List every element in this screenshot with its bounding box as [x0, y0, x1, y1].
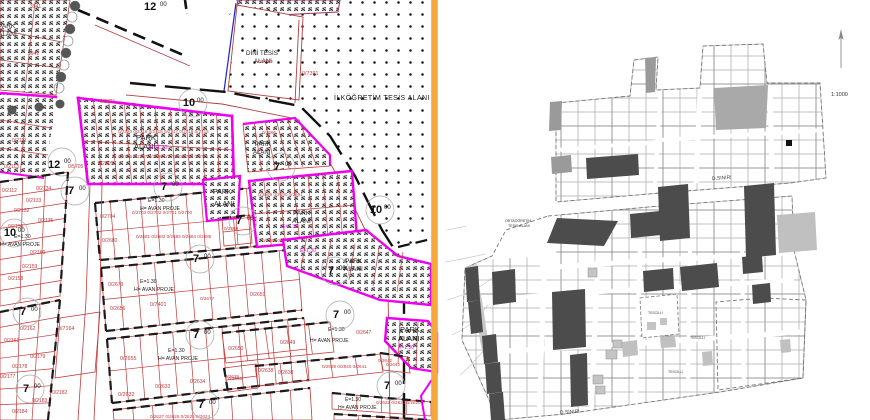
svg-text:00: 00	[34, 384, 41, 390]
svg-text:0/5705: 0/5705	[68, 164, 84, 170]
svg-text:0/2721: 0/2721	[100, 99, 116, 105]
svg-text:0/2159: 0/2159	[22, 264, 38, 270]
svg-text:0/2182: 0/2182	[52, 390, 68, 396]
svg-text:00: 00	[172, 182, 179, 188]
svg-text:7: 7	[384, 380, 390, 392]
svg-text:1:1000: 1:1000	[831, 92, 848, 98]
svg-text:10: 10	[4, 227, 16, 239]
svg-text:İLKÖĞRETİM TESİS ALANI: İLKÖĞRETİM TESİS ALANI	[334, 93, 430, 102]
svg-text:ALANI: ALANI	[0, 31, 17, 38]
svg-text:7: 7	[236, 215, 242, 227]
svg-text:3941: 3941	[30, 4, 41, 10]
svg-text:H= AVAN PROJE: H= AVAN PROJE	[338, 405, 377, 411]
svg-text:7: 7	[20, 306, 26, 318]
svg-text:E=1.30: E=1.30	[148, 198, 165, 204]
svg-text:TESCİLLİ: TESCİLLİ	[668, 369, 683, 374]
svg-text:0/2655: 0/2655	[120, 356, 137, 362]
svg-text:E=1.30: E=1.30	[300, 248, 316, 254]
svg-text:0/2638: 0/2638	[278, 370, 294, 376]
svg-text:0/2679: 0/2679	[108, 282, 124, 288]
svg-text:E=1.30: E=1.30	[398, 345, 414, 351]
svg-text:0/2634: 0/2634	[190, 379, 206, 385]
svg-text:0/2647: 0/2647	[356, 330, 372, 336]
svg-text:H= AVAN PROJE: H= AVAN PROJE	[310, 338, 349, 344]
svg-text:00: 00	[247, 216, 254, 222]
svg-text:PARK: PARK	[213, 189, 232, 196]
svg-text:ORTAÖĞRETİM: ORTAÖĞRETİM	[505, 218, 531, 223]
svg-text:DİNİ TESİS: DİNİ TESİS	[246, 50, 278, 57]
svg-text:00: 00	[31, 307, 38, 313]
svg-text:PARK: PARK	[345, 258, 363, 265]
svg-text:PARK: PARK	[293, 210, 311, 217]
svg-text:0/2639 0/2640 0/2641: 0/2639 0/2640 0/2641	[322, 364, 367, 369]
svg-text:10: 10	[183, 97, 195, 109]
svg-text:00: 00	[285, 162, 292, 168]
svg-text:TESCİLLİ: TESCİLLİ	[690, 335, 705, 340]
svg-text:7: 7	[68, 185, 74, 197]
svg-text:0/2720 0/2719 0/2718 0/2717 0/: 0/2720 0/2719 0/2718 0/2717 0/2716 0/271…	[118, 129, 209, 134]
svg-text:0/2689 0/2690 0/2691: 0/2689 0/2690 0/2691	[258, 192, 303, 197]
svg-text:0/2632: 0/2632	[118, 392, 135, 398]
svg-text:H= AVAN PROJE: H= AVAN PROJE	[158, 356, 199, 362]
svg-text:12: 12	[144, 1, 156, 13]
svg-text:7: 7	[333, 309, 339, 321]
svg-text:0/2706 0/2707 0/2708 0/2709 0/: 0/2706 0/2707 0/2708 0/2709 0/2710 0/271…	[118, 154, 209, 159]
svg-text:0/2177: 0/2177	[0, 374, 16, 380]
svg-text:00: 00	[339, 266, 346, 272]
svg-text:PARK: PARK	[400, 325, 420, 334]
svg-text:00: 00	[197, 98, 204, 104]
svg-text:7: 7	[193, 329, 199, 341]
svg-text:0/2178: 0/2178	[12, 364, 28, 370]
svg-text:0/2134: 0/2134	[36, 186, 52, 192]
svg-text:0/2162: 0/2162	[20, 326, 36, 332]
svg-text:E=1.30: E=1.30	[140, 279, 157, 285]
svg-text:0/2705: 0/2705	[98, 161, 114, 167]
svg-text:0/7164: 0/7164	[58, 326, 75, 332]
svg-text:0/2659: 0/2659	[250, 292, 266, 298]
svg-text:0/7391: 0/7391	[302, 71, 319, 77]
svg-text:0/2184: 0/2184	[12, 409, 28, 415]
svg-text:10: 10	[370, 204, 382, 216]
svg-text:00: 00	[204, 254, 211, 260]
svg-text:0/2650: 0/2650	[228, 346, 244, 352]
svg-text:0/2158: 0/2158	[8, 276, 24, 282]
svg-text:0/2112: 0/2112	[2, 188, 17, 194]
svg-text:ALANI: ALANI	[214, 201, 234, 208]
svg-text:0/2133: 0/2133	[26, 198, 42, 204]
svg-text:0/2642: 0/2642	[386, 362, 400, 367]
svg-text:00: 00	[209, 400, 216, 406]
svg-text:0/2638: 0/2638	[258, 368, 274, 374]
svg-text:0/2677: 0/2677	[200, 296, 214, 301]
svg-text:00: 00	[160, 2, 167, 8]
svg-text:0/2704: 0/2704	[100, 214, 116, 220]
svg-text:0/2113: 0/2113	[4, 164, 19, 170]
svg-text:0/2696: 0/2696	[262, 130, 276, 135]
svg-text:PARK: PARK	[136, 133, 156, 142]
svg-text:0/2681 0/2682 0/2683 0/2684 0/: 0/2681 0/2682 0/2683 0/2684 0/2685	[136, 234, 212, 239]
svg-text:12: 12	[48, 159, 60, 171]
svg-text:H= AVAN PROJE: H= AVAN PROJE	[140, 206, 181, 212]
svg-text:00: 00	[344, 310, 351, 316]
svg-text:E=1.30: E=1.30	[282, 224, 298, 230]
svg-text:00: 00	[18, 228, 25, 234]
svg-text:7: 7	[161, 181, 167, 193]
svg-text:7: 7	[274, 161, 280, 173]
svg-text:3942: 3942	[28, 51, 39, 57]
svg-text:ALANI: ALANI	[253, 150, 271, 156]
svg-text:0/2633: 0/2633	[155, 384, 171, 390]
svg-text:E=1.30: E=1.30	[345, 397, 361, 403]
svg-text:TESCİLLİ: TESCİLLİ	[648, 310, 663, 315]
svg-text:00: 00	[79, 186, 86, 192]
svg-text:E=1.30: E=1.30	[328, 327, 345, 333]
svg-text:E=1.30: E=1.30	[168, 348, 185, 354]
svg-text:E=1.30: E=1.30	[150, 145, 168, 151]
svg-text:0/2656: 0/2656	[110, 306, 126, 312]
svg-text:0/2665: 0/2665	[228, 376, 242, 381]
svg-text:0/2160: 0/2160	[30, 250, 46, 256]
svg-text:7: 7	[23, 383, 29, 395]
svg-text:0/2135: 0/2135	[38, 218, 54, 224]
svg-text:00: 00	[204, 330, 211, 336]
svg-text:PARK: PARK	[0, 23, 16, 30]
svg-text:0/7401: 0/7401	[150, 302, 167, 308]
svg-text:0/2132: 0/2132	[14, 208, 30, 214]
svg-text:H= AVAN PROJE: H= AVAN PROJE	[0, 242, 41, 248]
svg-text:0/2111: 0/2111	[12, 138, 27, 144]
svg-text:0/5799: 0/5799	[258, 59, 273, 65]
svg-text:0/2179: 0/2179	[30, 354, 46, 360]
svg-text:TESİS ALANI: TESİS ALANI	[508, 223, 530, 228]
svg-text:ALANI: ALANI	[344, 266, 363, 273]
svg-text:7: 7	[193, 253, 199, 265]
svg-text:PARK: PARK	[255, 142, 271, 148]
svg-text:0/2163: 0/2163	[4, 338, 20, 344]
svg-text:7: 7	[328, 265, 334, 277]
svg-text:00: 00	[384, 205, 391, 211]
svg-text:7: 7	[198, 399, 204, 411]
svg-text:0/2649: 0/2649	[280, 340, 296, 346]
svg-text:0/2622 0/2621 0/2620: 0/2622 0/2621 0/2620	[376, 400, 421, 405]
svg-text:H= AVAN PROJE: H= AVAN PROJE	[134, 287, 175, 293]
svg-text:0/2680: 0/2680	[102, 238, 118, 244]
svg-text:ALANI: ALANI	[398, 334, 420, 343]
svg-text:00: 00	[395, 381, 402, 387]
